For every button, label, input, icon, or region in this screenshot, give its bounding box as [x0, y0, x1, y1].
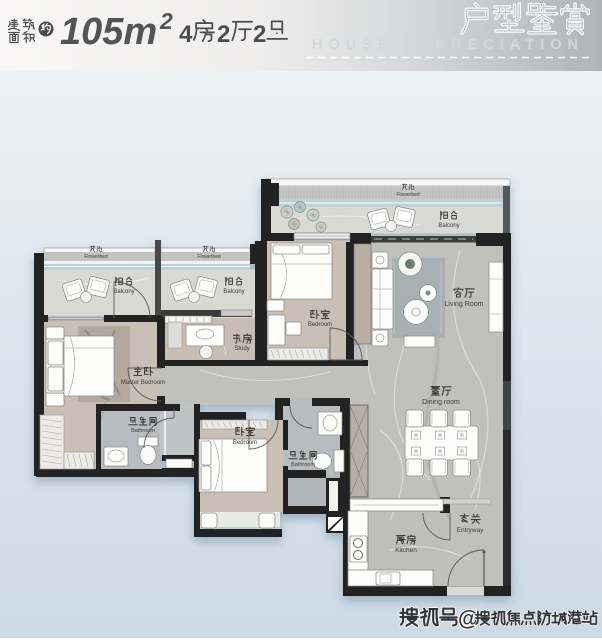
svg-text:Study: Study	[234, 346, 249, 352]
svg-text:Bathroom: Bathroom	[291, 462, 315, 468]
svg-text:Bathroom: Bathroom	[131, 428, 155, 434]
svg-text:4: 4	[179, 21, 193, 48]
svg-text:Dining room: Dining room	[422, 399, 460, 406]
svg-text:Balcony: Balcony	[438, 223, 459, 229]
svg-text:Flowerbed: Flowerbed	[396, 192, 420, 198]
svg-text:Living Room: Living Room	[445, 301, 484, 308]
svg-text:2: 2	[253, 21, 266, 48]
svg-text:HOUSE APPRECIATION: HOUSE APPRECIATION	[312, 37, 580, 53]
svg-text:Flowerbed: Flowerbed	[84, 254, 108, 260]
svg-text:Entryway: Entryway	[457, 527, 484, 534]
svg-text:Balcony: Balcony	[113, 289, 134, 295]
svg-text:Bedroom: Bedroom	[308, 322, 332, 328]
svg-text:Bedroom: Bedroom	[233, 440, 257, 446]
svg-text:Master Bedroom: Master Bedroom	[121, 380, 165, 386]
svg-text:2: 2	[159, 8, 173, 34]
svg-text:2: 2	[217, 21, 230, 48]
svg-text:Flowerbed: Flowerbed	[197, 254, 221, 260]
svg-text:Balcony: Balcony	[223, 289, 244, 295]
svg-text:105m: 105m	[60, 11, 157, 53]
svg-text:Kitchen: Kitchen	[395, 547, 417, 554]
